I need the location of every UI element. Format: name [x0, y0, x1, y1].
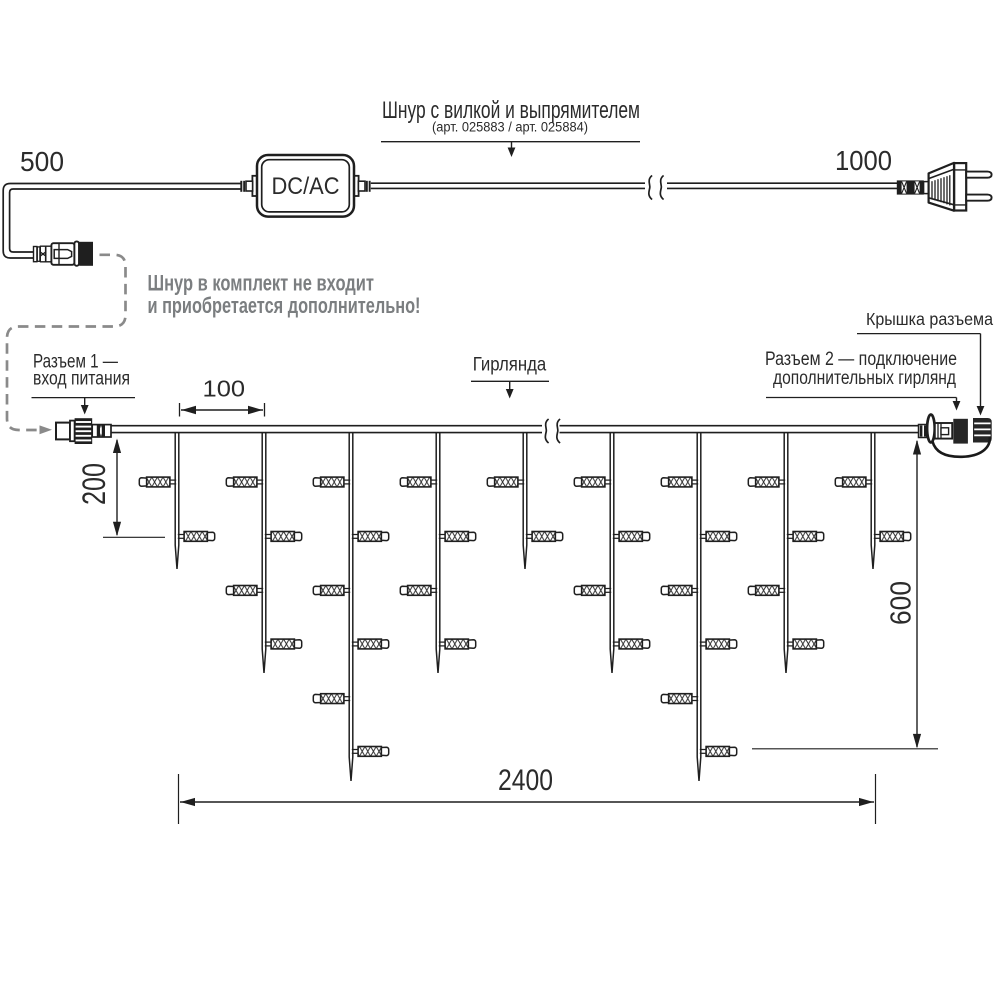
svg-text:600: 600 [886, 581, 918, 625]
svg-text:(арт. 025883 / арт. 025884): (арт. 025883 / арт. 025884) [432, 120, 588, 135]
svg-text:дополнительных гирлянд: дополнительных гирлянд [773, 368, 956, 389]
svg-text:Крышка разъема: Крышка разъема [866, 309, 993, 329]
svg-text:вход питания: вход питания [33, 369, 130, 390]
svg-text:1000: 1000 [835, 145, 892, 176]
svg-text:Шнур в комплект не входит: Шнур в комплект не входит [148, 271, 375, 296]
svg-text:Разъем 2 — подключение: Разъем 2 — подключение [765, 349, 957, 370]
svg-text:100: 100 [203, 376, 246, 402]
svg-text:500: 500 [20, 146, 64, 177]
svg-text:и приобретается дополнительно!: и приобретается дополнительно! [148, 293, 421, 318]
svg-text:200: 200 [76, 463, 112, 505]
svg-text:Гирлянда: Гирлянда [473, 355, 547, 376]
svg-text:2400: 2400 [498, 764, 553, 797]
svg-text:DC/AC: DC/AC [272, 173, 340, 200]
